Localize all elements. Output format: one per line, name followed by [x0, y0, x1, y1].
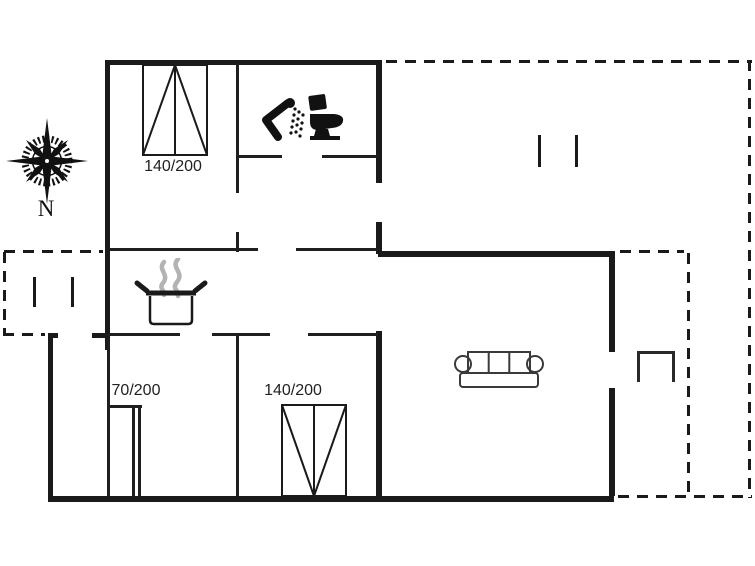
- double-bed-top-icon: [142, 64, 208, 157]
- wall-kitchen-south-a: [105, 333, 180, 336]
- compass-north-label: N: [27, 196, 65, 222]
- terrace-middle-divider: [687, 253, 690, 495]
- terrace-top-edge: [386, 60, 752, 63]
- chair-left-edge: [637, 351, 640, 382]
- wall-bedroom2-east: [376, 331, 382, 496]
- left-terrace-opening-mark: [33, 277, 36, 307]
- cooking-pot-icon: [133, 258, 209, 330]
- left-terrace-top-edge: [4, 250, 103, 253]
- terrace-opening-mark: [575, 135, 578, 167]
- sofa-icon: [452, 346, 546, 394]
- terrace-right-edge: [748, 60, 751, 498]
- wall-mid-vertical-upper: [376, 60, 382, 183]
- wall-bathroom-south-a: [238, 155, 282, 158]
- left-terrace-opening-mark: [71, 277, 74, 307]
- compass-rose-icon: [5, 117, 89, 205]
- wall-left-exterior: [105, 60, 110, 350]
- bed-size-label: 140/200: [135, 158, 211, 176]
- wall-bathroom-west: [236, 64, 239, 193]
- left-terrace-left-edge: [3, 252, 6, 335]
- chair-top-edge: [637, 351, 675, 354]
- wall-bedrooms-divider: [236, 335, 239, 496]
- single-bed-top-edge: [107, 405, 142, 408]
- toilet-icon: [304, 90, 348, 142]
- double-bed-bottom-icon: [281, 404, 347, 497]
- single-bed-inner-edge: [132, 405, 135, 496]
- terrace-opening-mark: [538, 135, 541, 167]
- chair-right-edge: [672, 351, 675, 382]
- wall-hall-south-a: [110, 248, 258, 251]
- wall-east-lower: [609, 388, 615, 496]
- left-terrace-bottom-edge: [3, 333, 45, 336]
- shower-icon: [258, 94, 306, 144]
- bed-size-label: 140/200: [255, 382, 331, 400]
- wall-bathroom-south-b: [322, 155, 378, 158]
- wall-kitchen-south-c: [308, 333, 378, 336]
- wall-hall-south-b: [296, 248, 378, 251]
- single-bed-right-edge: [138, 405, 141, 496]
- floor-plan: N 140/200: [0, 0, 755, 566]
- bed-size-label: 70/200: [99, 382, 173, 400]
- wall-entry-east: [107, 338, 110, 496]
- wall-kitchen-south-b: [212, 333, 270, 336]
- wall-lower-left-exterior: [48, 333, 53, 501]
- wall-east-upper: [609, 251, 615, 352]
- wall-living-north: [378, 251, 614, 257]
- terrace-middle-edge: [620, 250, 684, 253]
- terrace-bottom-right-edge: [618, 495, 752, 498]
